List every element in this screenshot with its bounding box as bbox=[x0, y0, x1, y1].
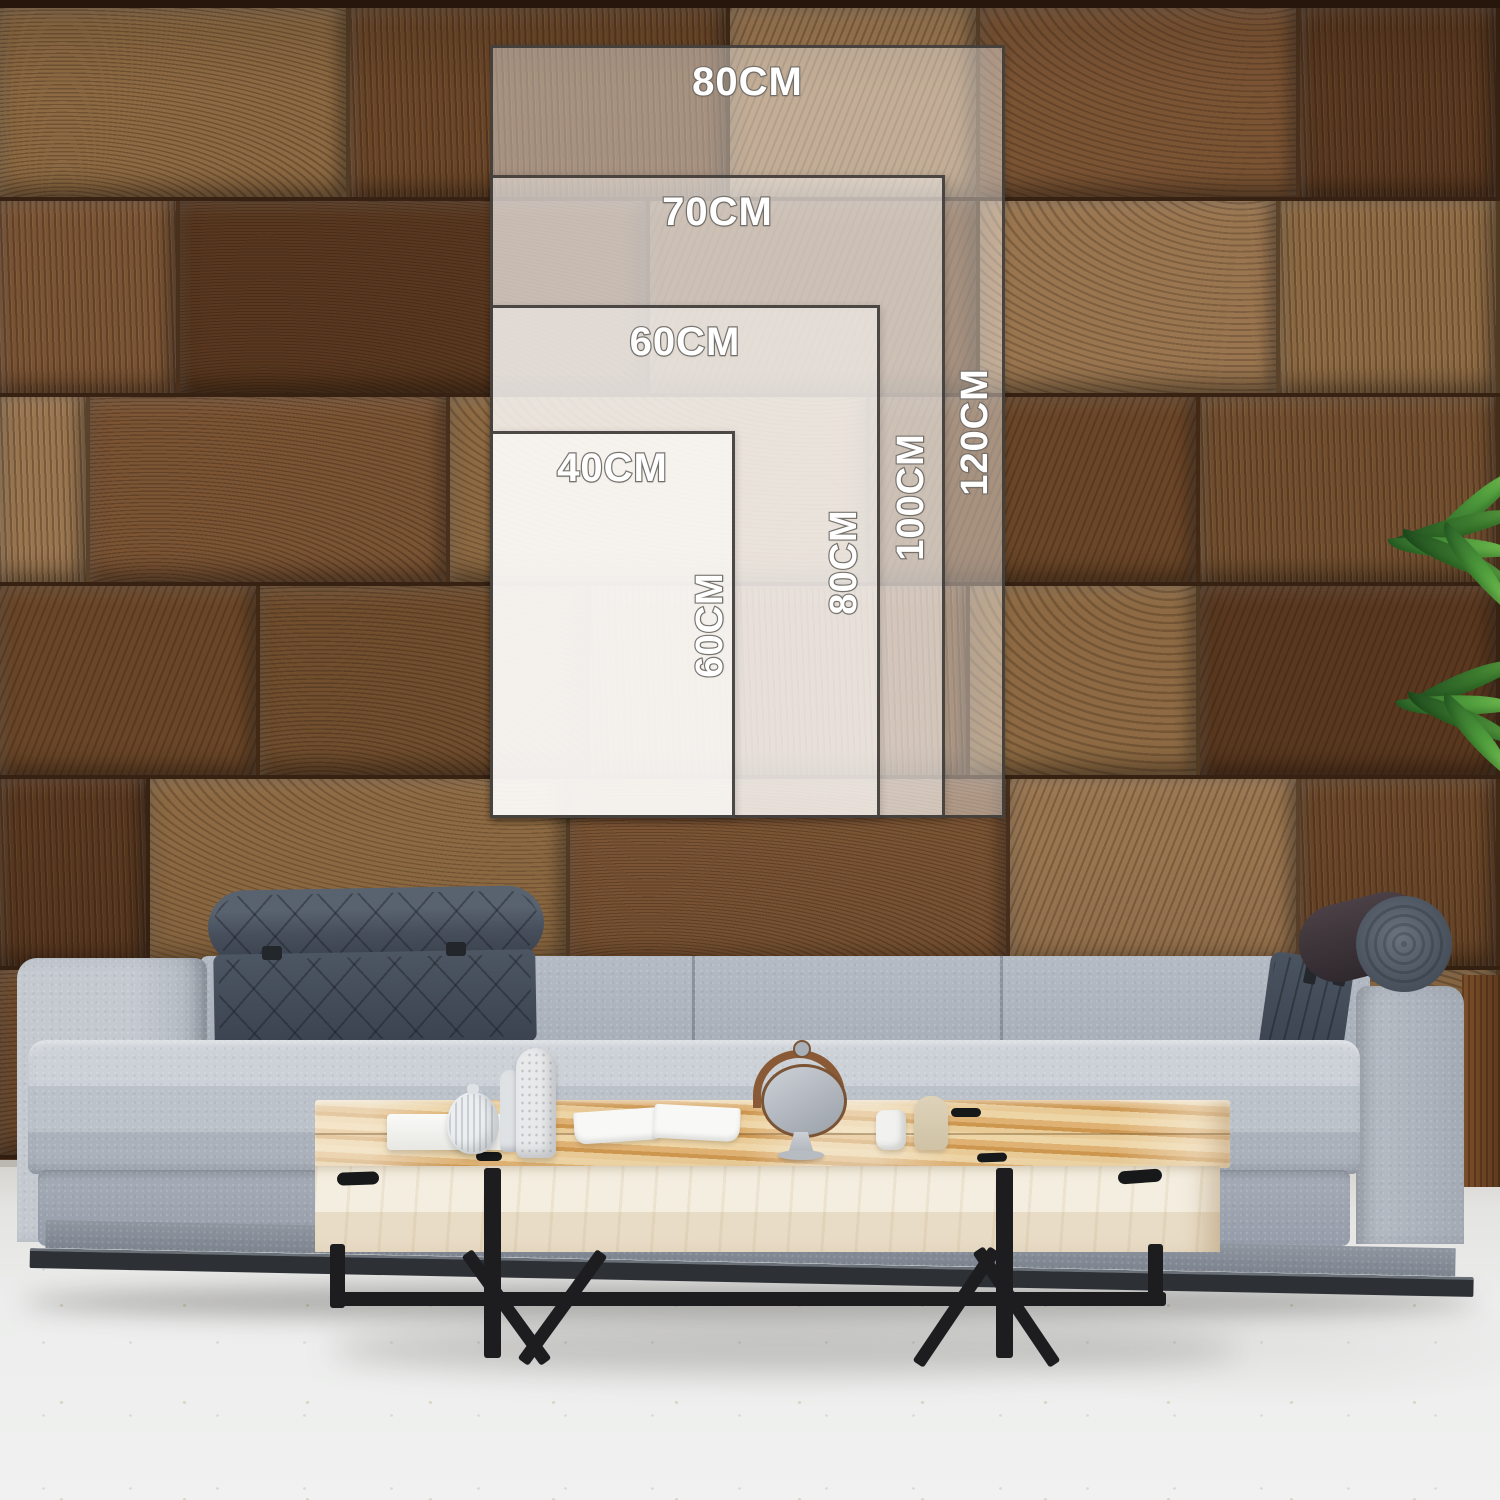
table-leg-runner bbox=[338, 1292, 1166, 1306]
mirror-foot bbox=[778, 1150, 824, 1160]
table-handle-slot bbox=[337, 1171, 379, 1185]
table-leg-post bbox=[1148, 1244, 1163, 1306]
table-handle-slot bbox=[977, 1152, 1007, 1162]
mirror-glass bbox=[761, 1064, 847, 1138]
table-leg-post bbox=[996, 1168, 1013, 1358]
table-mirror bbox=[755, 1062, 847, 1136]
tall-bottle-vase bbox=[516, 1048, 556, 1158]
coffee-table bbox=[0, 0, 1500, 1500]
ribbed-vase bbox=[447, 1092, 499, 1154]
table-handle-slot bbox=[951, 1108, 981, 1117]
table-leg-post bbox=[484, 1168, 501, 1358]
mirror-knob bbox=[793, 1040, 811, 1058]
white-cup bbox=[876, 1110, 906, 1150]
open-book-right-page bbox=[653, 1104, 741, 1142]
beige-jar bbox=[914, 1096, 948, 1150]
table-leg-post bbox=[330, 1244, 345, 1308]
size-guide-photo: 80CM 120CM 70CM 100CM 60CM 80CM 40CM 60C… bbox=[0, 0, 1500, 1500]
open-book-left-page bbox=[573, 1107, 659, 1145]
table-front-panel bbox=[315, 1166, 1220, 1252]
